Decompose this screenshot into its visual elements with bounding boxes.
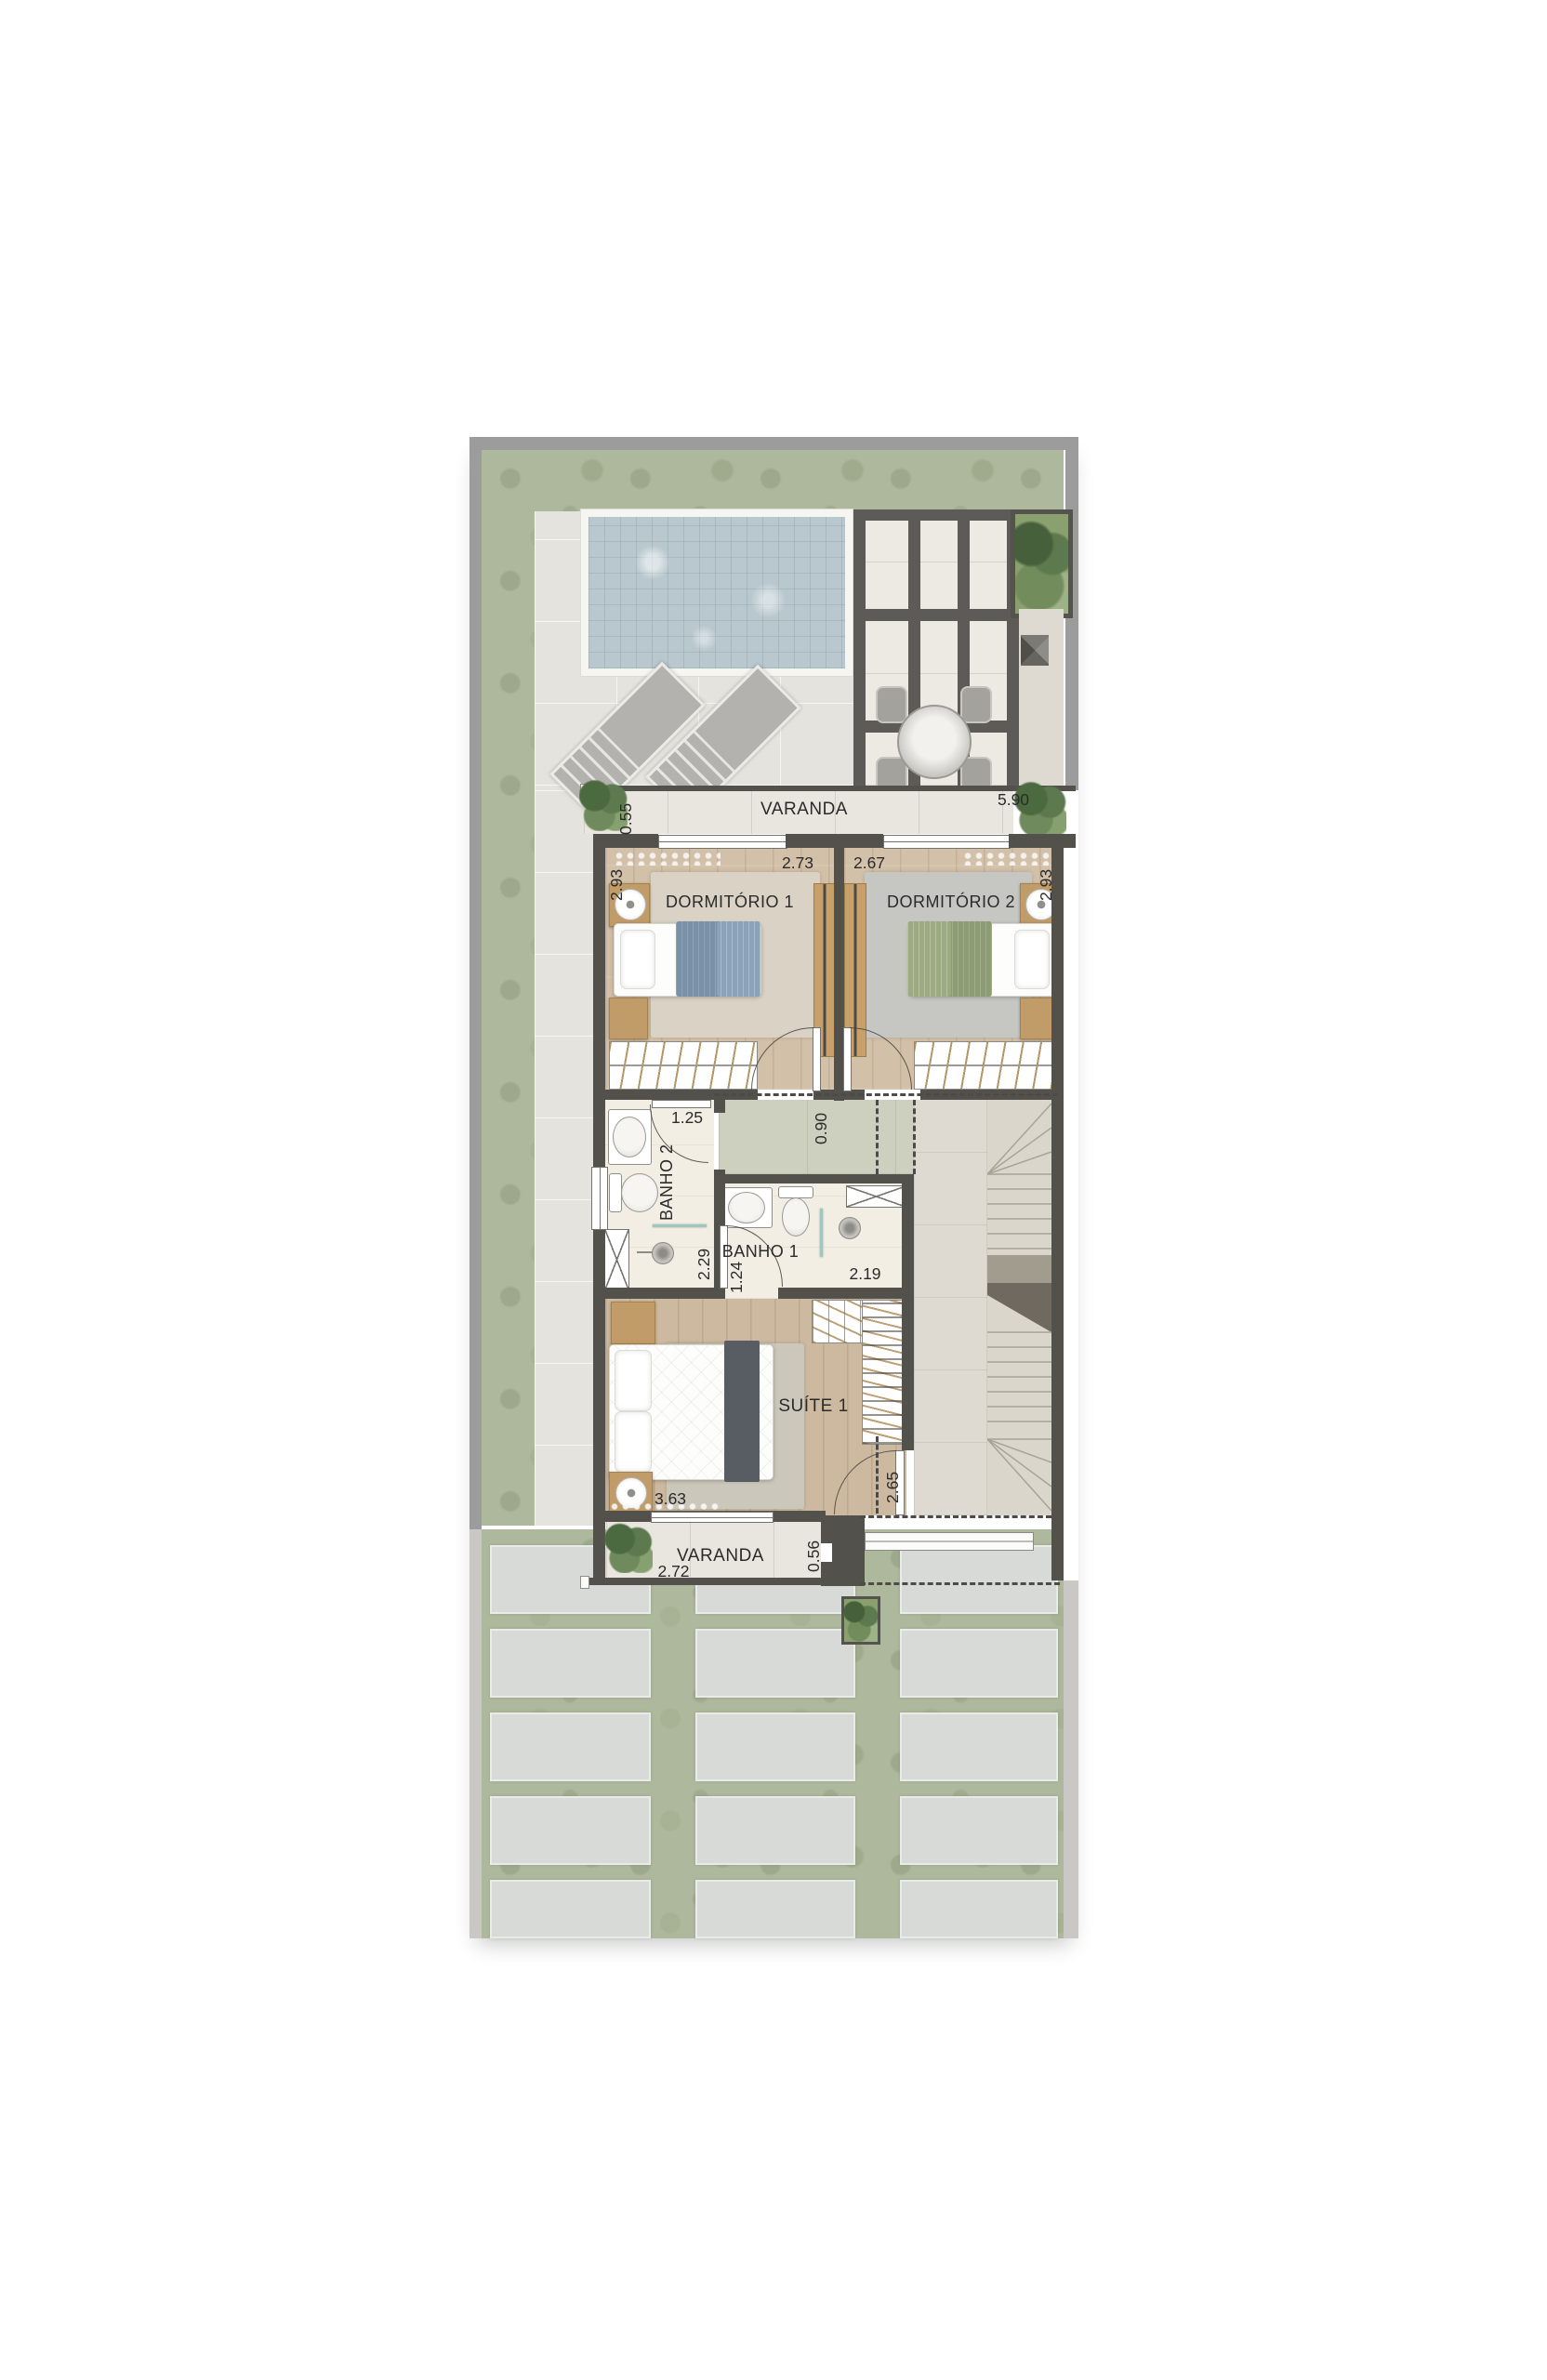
dim-dormitorio1-width: 2.73 xyxy=(774,853,821,873)
dim-dormitorio2-width: 2.67 xyxy=(846,853,892,873)
pergola-planter xyxy=(1011,509,1073,618)
shower-box xyxy=(604,1229,629,1290)
small-planter xyxy=(841,1596,880,1645)
paver xyxy=(490,1629,651,1698)
projection-line xyxy=(860,1515,1051,1518)
side-path-left xyxy=(535,786,593,1527)
projection-line xyxy=(876,1100,879,1174)
paver xyxy=(900,1796,1058,1865)
wall-right xyxy=(1051,834,1064,1580)
plant-icon xyxy=(609,998,648,1039)
pergola-beam-h1 xyxy=(853,509,1019,521)
dim-varanda-top-width: 5.90 xyxy=(990,790,1037,810)
room-label-suite1: SUÍTE 1 xyxy=(748,1396,879,1417)
projection-line xyxy=(913,1100,916,1174)
shelf-unit xyxy=(812,1300,864,1343)
projection-line xyxy=(860,1582,1060,1585)
shower-icon xyxy=(652,1242,674,1264)
wall xyxy=(1009,834,1076,848)
dim-banho2-width: 1.25 xyxy=(665,1108,709,1128)
sliding-door-varanda xyxy=(651,1512,773,1523)
paver xyxy=(695,1796,855,1865)
planter-plant-icon xyxy=(604,1523,653,1573)
window-dormitorio1 xyxy=(658,835,787,849)
dim-varanda-top-depth: 0.55 xyxy=(616,794,636,844)
blanket xyxy=(907,921,992,997)
floor-plan: VARANDA 5.90 0.55 DORMITÓRIO 1 2.73 2.93… xyxy=(469,437,1078,1938)
dining-table-icon xyxy=(897,705,972,779)
toilet-icon xyxy=(621,1173,658,1212)
dim-varanda-bottom-width: 2.72 xyxy=(648,1562,699,1581)
shower-box xyxy=(846,1185,906,1208)
toilet-tank xyxy=(609,1173,622,1212)
toilet-icon xyxy=(782,1197,810,1236)
boundary-wall-left-lower xyxy=(469,1529,482,1938)
wall-cap xyxy=(580,1576,589,1589)
dim-dormitorio1-depth: 2.93 xyxy=(607,857,627,913)
paver xyxy=(695,1629,855,1698)
paver xyxy=(900,1712,1058,1781)
room-label-varanda-top: VARANDA xyxy=(730,800,879,820)
dim-hall-width: 0.90 xyxy=(812,1103,831,1155)
swimming-pool xyxy=(588,517,845,668)
paver xyxy=(900,1880,1058,1938)
sink-basin xyxy=(613,1117,646,1157)
garden-grass-top xyxy=(482,450,1064,511)
pillow xyxy=(620,930,655,989)
pillow xyxy=(1014,930,1050,989)
garden-grass-left xyxy=(482,450,535,1529)
room-label-dormitorio1: DORMITÓRIO 1 xyxy=(628,892,832,912)
wall-banho1-top xyxy=(719,1174,914,1183)
garland-decor xyxy=(614,852,721,866)
dim-varanda-bottom-depth: 0.56 xyxy=(804,1530,824,1582)
paver xyxy=(490,1796,651,1865)
projection-line xyxy=(876,1436,879,1514)
paver xyxy=(490,1712,651,1781)
window-banho2 xyxy=(591,1167,608,1230)
dim-dormitorio2-depth: 2.93 xyxy=(1037,857,1056,913)
paver xyxy=(695,1880,855,1938)
wardrobe-icon xyxy=(862,1300,906,1445)
wall-suite-top xyxy=(778,1288,914,1299)
door-leaf xyxy=(813,1027,821,1091)
pergola-beam-h2 xyxy=(853,609,1019,621)
stairs xyxy=(987,1100,1051,1515)
dim-banho1-depth: 2.19 xyxy=(840,1264,891,1284)
boundary-wall-top xyxy=(469,437,1078,450)
paver xyxy=(490,1880,651,1938)
dining-chair-icon xyxy=(876,686,907,723)
sink-basin xyxy=(728,1192,765,1223)
shower-icon xyxy=(839,1217,861,1239)
wall-banho1-right xyxy=(902,1174,914,1450)
skylight-icon xyxy=(1021,635,1049,666)
closet-rack xyxy=(609,1041,758,1090)
pillow xyxy=(615,1350,652,1411)
boundary-wall-left xyxy=(469,437,482,1529)
dim-suite1-width: 3.63 xyxy=(646,1489,694,1509)
closet-rack xyxy=(914,1041,1055,1090)
room-label-banho2: BANHO 2 xyxy=(657,1127,677,1238)
railing xyxy=(865,1532,1034,1551)
paver xyxy=(900,1545,1058,1614)
blanket xyxy=(676,921,760,997)
stair-hall-floor xyxy=(914,1100,987,1515)
room-label-dormitorio2: DORMITÓRIO 2 xyxy=(849,892,1053,912)
pillow xyxy=(615,1411,652,1473)
dining-chair-icon xyxy=(960,686,992,723)
paver xyxy=(900,1629,1058,1698)
pergola-beam-v1 xyxy=(853,509,866,786)
dim-suite1-depth: 2.65 xyxy=(883,1460,903,1515)
window-dormitorio2 xyxy=(883,835,1011,849)
projection-line xyxy=(714,1093,1058,1096)
paver xyxy=(695,1712,855,1781)
plant-icon xyxy=(611,1302,655,1344)
page: { "document": {"kind": "residential floo… xyxy=(0,0,1547,2380)
wall-banho2-right xyxy=(714,1100,725,1113)
varanda-bottom-parapet xyxy=(584,1578,823,1585)
room-label-banho1: BANHO 1 xyxy=(700,1242,821,1262)
